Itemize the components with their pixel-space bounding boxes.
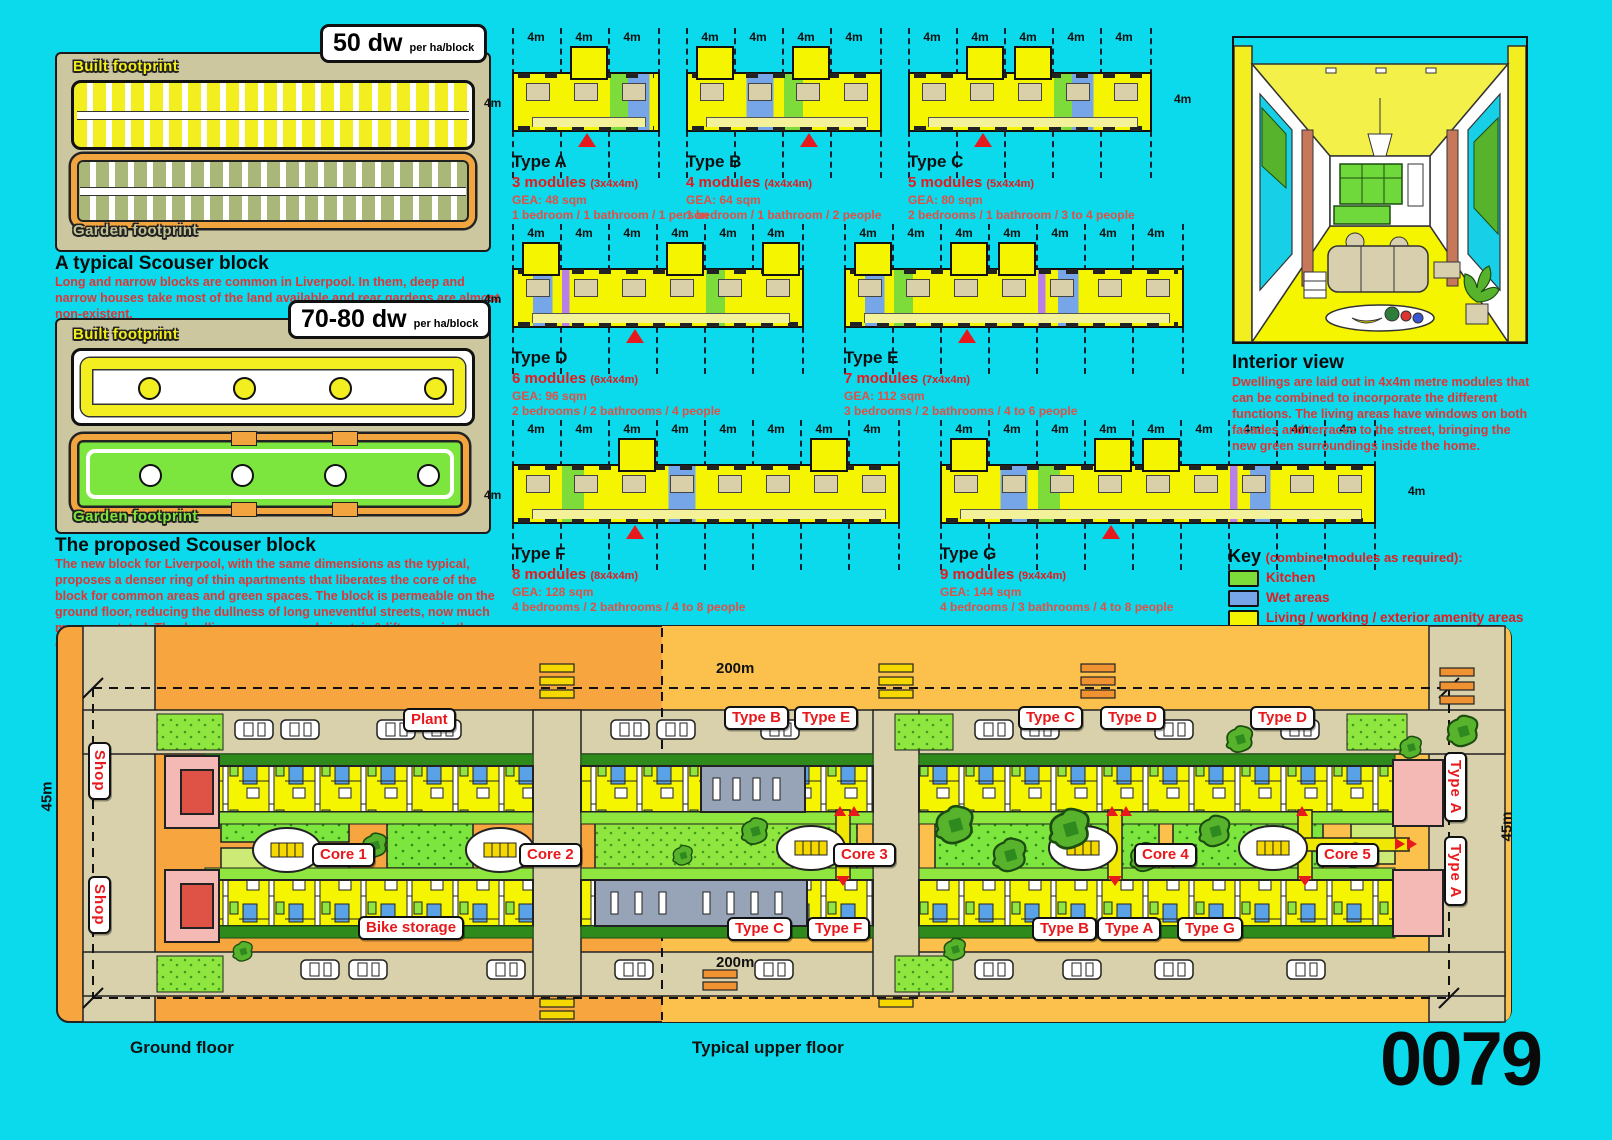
core-5-label: Core 5 xyxy=(1316,843,1379,867)
type-name: Type E xyxy=(844,348,1084,368)
type-modules: 3 modules xyxy=(512,174,586,191)
typical-block-title: A typical Scouser block xyxy=(55,253,269,275)
type-modules: 8 modules xyxy=(512,566,586,583)
type-f-caption: Type F 8 modules (8x4x4m) GEA: 128 sqm 4… xyxy=(512,544,752,614)
type-gea: GEA: 144 sqm xyxy=(940,585,1180,599)
type-gea: GEA: 112 sqm xyxy=(844,389,1084,403)
site-type-f-bottom: Type F xyxy=(807,917,870,941)
type-name: Type F xyxy=(512,544,752,564)
type-gea: GEA: 80 sqm xyxy=(908,193,1148,207)
type-size: (9x4x4m) xyxy=(1018,570,1066,582)
type-size: (8x4x4m) xyxy=(590,570,638,582)
interior-view-sketch xyxy=(1232,36,1528,344)
sheet-number: 0079 xyxy=(1380,1022,1541,1098)
legend-subtitle: (combine modules as required): xyxy=(1265,550,1462,565)
site-plan-drawing xyxy=(55,620,1515,1024)
proposed-garden-footprint-diagram xyxy=(71,434,469,514)
type-modules: 6 modules xyxy=(512,370,586,387)
row3-left-dim: 4m xyxy=(484,488,501,502)
interior-view-description: Dwellings are laid out in 4x4m metre mod… xyxy=(1232,374,1532,454)
site-type-c-bottom: Type C xyxy=(727,917,792,941)
type-gea: GEA: 96 sqm xyxy=(512,389,752,403)
garden-footprint-label: Garden footprint xyxy=(73,222,198,239)
floor-plan-type-d: 4m4m4m4m4m4m xyxy=(512,226,804,328)
floor-plan-type-e: 4m4m4m4m4m4m4m xyxy=(844,226,1184,328)
site-type-g-bottom: Type G xyxy=(1177,917,1243,941)
site-type-e-top: Type E xyxy=(794,706,858,730)
type-modules: 4 modules xyxy=(686,174,760,191)
site-type-a-bottom: Type A xyxy=(1097,917,1161,941)
bike-storage-label: Bike storage xyxy=(358,916,464,940)
type-occupancy: 2 bedrooms / 1 bathroom / 3 to 4 people xyxy=(908,208,1148,222)
legend-title: Key xyxy=(1228,546,1261,566)
dim-200m-top: 200m xyxy=(716,660,754,677)
core-2-label: Core 2 xyxy=(519,843,582,867)
type-e-caption: Type E 7 modules (7x4x4m) GEA: 112 sqm 3… xyxy=(844,348,1084,418)
dim-200m-bottom: 200m xyxy=(716,954,754,971)
type-modules: 5 modules xyxy=(908,174,982,191)
type-name: Type B xyxy=(686,152,926,172)
built-footprint-label: Built footprint xyxy=(73,326,178,343)
legend-item-kitchen: Kitchen xyxy=(1228,570,1558,587)
type-modules: 7 modules xyxy=(844,370,918,387)
kitchen-swatch xyxy=(1228,570,1259,587)
typical-built-footprint-diagram xyxy=(71,80,475,150)
ground-floor-caption: Ground floor xyxy=(130,1038,234,1058)
type-occupancy: 4 bedrooms / 2 bathrooms / 4 to 8 people xyxy=(512,600,752,614)
core-4-label: Core 4 xyxy=(1134,843,1197,867)
typical-block-panel: Built footprint Garden footprint xyxy=(55,52,491,252)
density-value: 70-80 dw xyxy=(301,303,407,336)
type-name: Type G xyxy=(940,544,1180,564)
density-unit: per ha/block xyxy=(409,42,474,54)
site-type-d-top-1: Type D xyxy=(1100,706,1165,730)
site-type-a-right-2: Type A xyxy=(1444,836,1467,906)
type-size: (4x4x4m) xyxy=(764,178,812,190)
density-value: 50 dw xyxy=(333,27,402,60)
type-name: Type D xyxy=(512,348,752,368)
type-size: (6x4x4m) xyxy=(590,374,638,386)
density-badge-typical: 50 dw per ha/block xyxy=(320,24,487,63)
type-size: (3x4x4m) xyxy=(590,178,638,190)
type-name: Type C xyxy=(908,152,1148,172)
proposed-built-footprint-diagram xyxy=(71,348,475,426)
core-3-label: Core 3 xyxy=(833,843,896,867)
type-modules: 9 modules xyxy=(940,566,1014,583)
shop-label-top: Shop xyxy=(88,742,111,800)
type-occupancy: 4 bedrooms / 3 bathrooms / 4 to 8 people xyxy=(940,600,1180,614)
site-type-a-right-1: Type A xyxy=(1444,752,1467,822)
built-footprint-label: Built footprint xyxy=(73,58,178,75)
type-occupancy: 3 bedrooms / 2 bathrooms / 4 to 6 people xyxy=(844,404,1084,418)
interior-sketch-drawing xyxy=(1234,38,1526,342)
floor-plan-type-f: 4m4m4m4m4m4m4m4m xyxy=(512,422,900,524)
floor-plan-type-c: 4m4m4m4m4m xyxy=(908,30,1152,132)
density-badge-proposed: 70-80 dw per ha/block xyxy=(288,300,491,339)
upper-floor-caption: Typical upper floor xyxy=(692,1038,844,1058)
plant-label: Plant xyxy=(403,708,456,732)
core-1-label: Core 1 xyxy=(312,843,375,867)
interior-view-title: Interior view xyxy=(1232,352,1344,374)
legend-item-wet-areas: Wet areas xyxy=(1228,590,1558,607)
type-g-caption: Type G 9 modules (9x4x4m) GEA: 144 sqm 4… xyxy=(940,544,1180,614)
row3-right-dim: 4m xyxy=(1408,484,1425,498)
proposed-block-title: The proposed Scouser block xyxy=(55,535,316,557)
proposed-block-panel: Built footprint Garden footprint xyxy=(55,318,491,534)
type-occupancy: 2 bedrooms / 2 bathrooms / 4 people xyxy=(512,404,752,418)
shop-label-bottom: Shop xyxy=(88,876,111,934)
site-type-d-top-2: Type D xyxy=(1250,706,1315,730)
type-size: (7x4x4m) xyxy=(922,374,970,386)
dim-45m-left: 45m xyxy=(39,781,56,811)
type-size: (5x4x4m) xyxy=(986,178,1034,190)
dim-45m-right: 45m xyxy=(1499,811,1516,841)
type-d-caption: Type D 6 modules (6x4x4m) GEA: 96 sqm 2 … xyxy=(512,348,752,418)
row1-right-dim: 4m xyxy=(1174,92,1191,106)
site-type-b-top: Type B xyxy=(724,706,789,730)
floor-plan-type-a: 4m4m4m xyxy=(512,30,660,132)
row1-left-dim: 4m xyxy=(484,96,501,110)
density-unit: per ha/block xyxy=(414,318,479,330)
type-c-caption: Type C 5 modules (5x4x4m) GEA: 80 sqm 2 … xyxy=(908,152,1148,222)
type-occupancy: 1 bedroom / 1 bathroom / 2 people xyxy=(686,208,926,222)
garden-footprint-label: Garden footprint xyxy=(73,508,198,525)
site-type-b-bottom: Type B xyxy=(1032,917,1097,941)
type-b-caption: Type B 4 modules (4x4x4m) GEA: 64 sqm 1 … xyxy=(686,152,926,222)
site-type-c-top: Type C xyxy=(1018,706,1083,730)
typical-garden-footprint-diagram xyxy=(71,154,475,228)
floor-plan-type-b: 4m4m4m4m xyxy=(686,30,882,132)
type-gea: GEA: 128 sqm xyxy=(512,585,752,599)
type-gea: GEA: 64 sqm xyxy=(686,193,926,207)
wet-areas-swatch xyxy=(1228,590,1259,607)
